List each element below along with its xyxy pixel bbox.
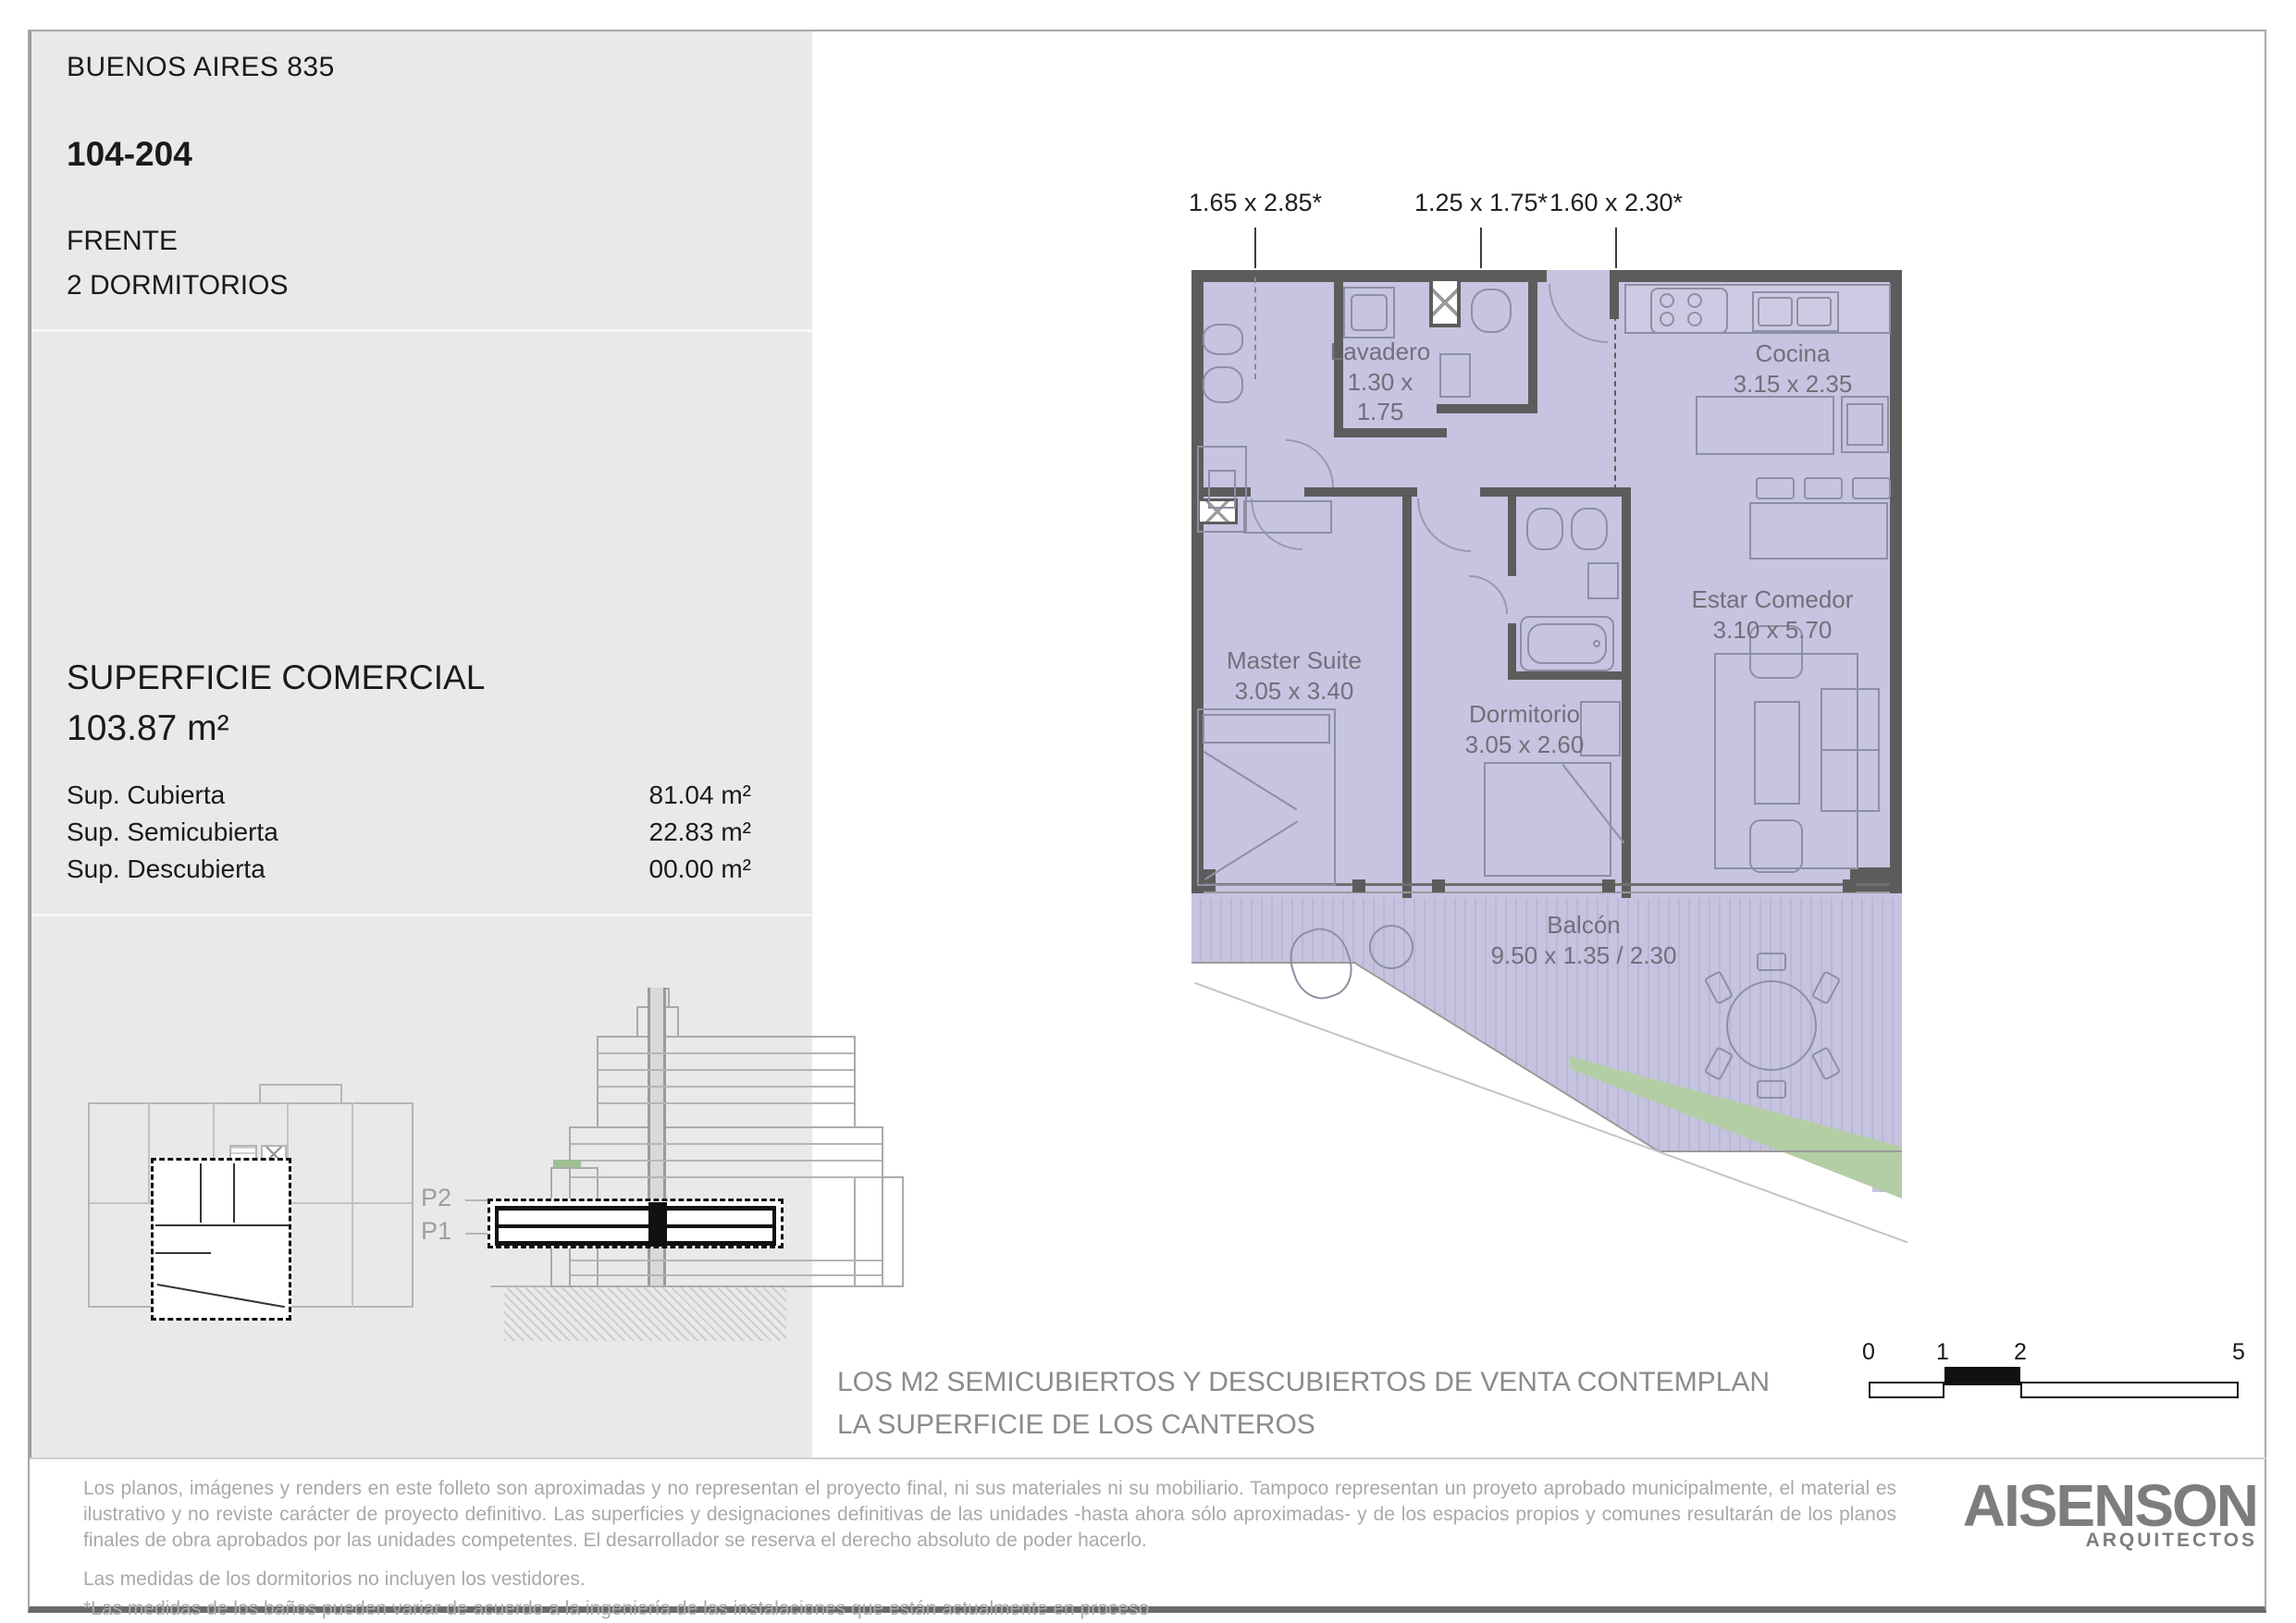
wall-segment [1508,497,1516,576]
dimension-label: 1.65 x 2.85* [1189,189,1322,217]
orientation-label: FRENTE [67,226,178,257]
wall-segment [1480,487,1631,497]
room-dims: 3.05 x 3.40 [1227,676,1362,707]
room-name: Cocina [1734,338,1853,369]
wall-segment [1850,867,1902,893]
side-table-icon [1369,925,1413,969]
section-label-p2: P2 [421,1184,451,1212]
wardrobe [1243,500,1332,534]
kitchen-sink-icon [1796,297,1832,326]
canteros-note-line: LOS M2 SEMICUBIERTOS Y DESCUBIERTOS DE V… [837,1361,1770,1404]
project-title: BUENOS AIRES 835 [67,52,335,83]
section-ground-hatch [504,1287,786,1341]
bed-pillow [1203,714,1330,744]
superficie-row: Sup. Semicubierta 22.83 m² [67,818,751,855]
wall-segment [1437,404,1537,413]
wall-segment [1622,497,1631,898]
window-mullion [1352,879,1365,892]
scale-segment-filled [1944,1367,2020,1385]
superficie-total: 103.87 m² [67,708,229,749]
wall-segment [1402,487,1417,497]
room-name: Estar Comedor [1692,584,1854,615]
superficie-row: Sup. Descubierta 00.00 m² [67,855,751,891]
burner-icon [1687,312,1702,326]
scale-tick-label: 0 [1862,1339,1875,1366]
wall-segment [1334,428,1447,437]
room-label-lavadero: Lavadero 1.30 x 1.75 [1315,337,1445,427]
armchair-icon [1749,819,1803,873]
scale-tick-label: 1 [1936,1339,1949,1366]
window-band [1204,891,1890,893]
burner-icon [1687,293,1702,308]
disclaimer-line: Las medidas de los dormitorios no incluy… [83,1567,1896,1592]
shaft-icon [1429,277,1461,327]
room-dims: 3.10 x 5.70 [1692,615,1854,646]
chair-icon [1852,477,1891,499]
sidebar-separator [31,329,814,332]
chair-icon [1757,1080,1786,1099]
sidebar-separator [31,914,814,916]
chair-icon [1756,477,1795,499]
disclaimer-line: *Las medidas de los baños pueden variar … [83,1596,1896,1622]
room-name: Balcón [1491,910,1677,941]
room-name: Lavadero [1315,337,1445,367]
scale-segment [2020,1382,2239,1398]
wall-segment [1402,497,1412,898]
wall-segment [1890,270,1902,873]
superficie-title: SUPERFICIE COMERCIAL [67,658,485,697]
wall-segment [1304,487,1412,497]
appliance [1846,403,1883,446]
room-dims: 1.30 x 1.75 [1338,367,1423,427]
drain-icon [1593,640,1600,647]
room-label-balcon: Balcón 9.50 x 1.35 / 2.30 [1491,910,1677,970]
unit-number: 104-204 [67,135,192,174]
canteros-note-line: LA SUPERFICIE DE LOS CANTEROS [837,1404,1770,1446]
room-dims: 3.15 x 2.35 [1734,369,1853,400]
superficie-row-label: Sup. Descubierta [67,855,265,883]
room-dims: 3.05 x 2.60 [1465,730,1585,760]
burner-icon [1660,293,1674,308]
coffee-table [1754,701,1800,805]
dimension-label: 1.25 x 1.75* [1414,189,1548,217]
sink-icon [1208,470,1236,509]
footer-divider [30,1457,2266,1459]
canteros-note: LOS M2 SEMICUBIERTOS Y DESCUBIERTOS DE V… [837,1361,1770,1446]
toilet-icon [1203,366,1243,403]
wall-segment [1528,282,1537,413]
wall-segment [1191,270,1547,282]
window-mullion [1432,879,1445,892]
key-plan-core-block [259,1084,342,1104]
window-mullion [1602,879,1615,892]
washer-icon [1351,294,1388,331]
wardrobe [1580,701,1621,756]
typology-label: 2 DORMITORIOS [67,270,288,301]
toilet-icon [1526,508,1563,550]
wall-segment [1508,671,1630,680]
disclaimer-paragraph: Los planos, imágenes y renders en este f… [83,1476,1896,1554]
toilet-icon [1471,289,1512,333]
projection-line [1614,277,1616,490]
projection-line [1254,277,1256,379]
superficie-row-label: Sup. Semicubierta [67,818,278,846]
dorm-bed [1484,762,1611,877]
leader-line [1254,227,1256,268]
burner-icon [1660,312,1674,326]
leader-line [1615,227,1617,268]
green-terrace [553,1160,581,1167]
sink-icon [1587,562,1619,599]
chair-icon [1757,953,1786,971]
dining-table [1749,502,1888,559]
superficie-row-value: 22.83 m² [649,818,752,847]
scale-tick-label: 2 [2014,1339,2027,1366]
room-label-dormitorio: Dormitorio 3.05 x 2.60 [1465,699,1585,759]
section-label-p1: P1 [421,1217,451,1246]
wall-segment [1610,270,1902,282]
room-label-cocina: Cocina 3.15 x 2.35 [1734,338,1853,399]
scale-segment [1869,1382,1944,1398]
dimension-label: 1.60 x 2.30* [1549,189,1683,217]
superficie-table: Sup. Cubierta 81.04 m² Sup. Semicubierta… [67,781,751,891]
window-mullion [1843,879,1856,892]
brochure-page: BUENOS AIRES 835 104-204 FRENTE 2 DORMIT… [0,0,2296,1623]
balcony-table-icon [1726,980,1817,1071]
scale-tick-label: 5 [2232,1339,2245,1366]
superficie-row-value: 00.00 m² [649,855,752,884]
leader-line [1480,227,1482,268]
edge-line [1660,1150,1902,1152]
chair-icon [1804,477,1843,499]
superficie-row: Sup. Cubierta 81.04 m² [67,781,751,818]
room-dims: 9.50 x 1.35 / 2.30 [1491,941,1677,971]
bidet-icon [1203,324,1243,355]
room-name: Dormitorio [1465,699,1585,730]
logo: AISENSON ARQUITECTOS [1929,1476,2257,1552]
superficie-row-label: Sup. Cubierta [67,781,225,809]
room-label-estar: Estar Comedor 3.10 x 5.70 [1692,584,1854,645]
superficie-row-value: 81.04 m² [649,781,752,810]
logo-name: AISENSON [1929,1476,2257,1535]
kitchen-sink-icon [1758,297,1793,326]
room-name: Master Suite [1227,646,1362,676]
bidet-icon [1571,508,1608,550]
kitchen-island [1696,396,1834,455]
disclaimer: Los planos, imágenes y renders en este f… [83,1476,1896,1622]
room-label-master: Master Suite 3.05 x 3.40 [1227,646,1362,706]
